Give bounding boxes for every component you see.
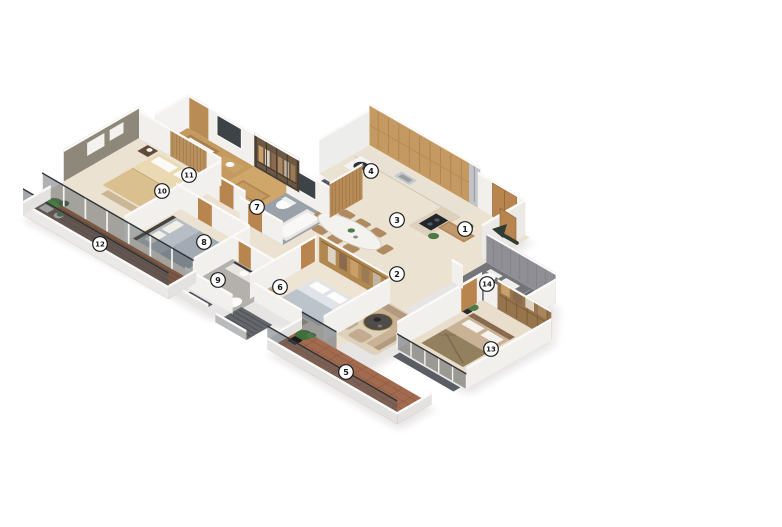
room-marker-12: 12 xyxy=(93,237,108,252)
room-marker-number: 5 xyxy=(343,368,349,377)
room-marker-13: 13 xyxy=(484,342,499,357)
room-marker-number: 4 xyxy=(368,167,374,176)
floor-plan-image: 1234567891011121314 xyxy=(0,0,782,527)
room-marker-number: 7 xyxy=(254,203,260,212)
room-marker-11: 11 xyxy=(182,168,197,183)
room-marker-6: 6 xyxy=(273,280,288,295)
room-marker-number: 8 xyxy=(201,238,207,247)
room-marker-number: 10 xyxy=(157,188,167,196)
room-marker-number: 9 xyxy=(215,276,221,285)
room-marker-2: 2 xyxy=(390,267,405,282)
room-marker-4: 4 xyxy=(364,164,379,179)
floor-plan-render xyxy=(14,73,632,430)
room-marker-7: 7 xyxy=(250,200,265,215)
room-marker-1: 1 xyxy=(458,222,473,237)
room-marker-10: 10 xyxy=(155,184,170,199)
room-marker-number: 6 xyxy=(277,283,283,292)
room-marker-number: 1 xyxy=(462,225,468,234)
room-marker-14: 14 xyxy=(480,277,495,292)
room-marker-number: 13 xyxy=(486,346,496,354)
room-marker-number: 2 xyxy=(394,270,400,279)
room-marker-8: 8 xyxy=(197,235,212,250)
room-marker-number: 11 xyxy=(184,172,194,180)
room-marker-number: 3 xyxy=(394,216,400,225)
room-marker-number: 14 xyxy=(482,281,492,289)
apartment-3d-floorplan: 1234567891011121314 xyxy=(0,0,782,527)
room-marker-number: 12 xyxy=(95,241,105,249)
room-marker-9: 9 xyxy=(211,273,226,288)
room-marker-3: 3 xyxy=(390,213,405,228)
room-marker-5: 5 xyxy=(339,365,354,380)
